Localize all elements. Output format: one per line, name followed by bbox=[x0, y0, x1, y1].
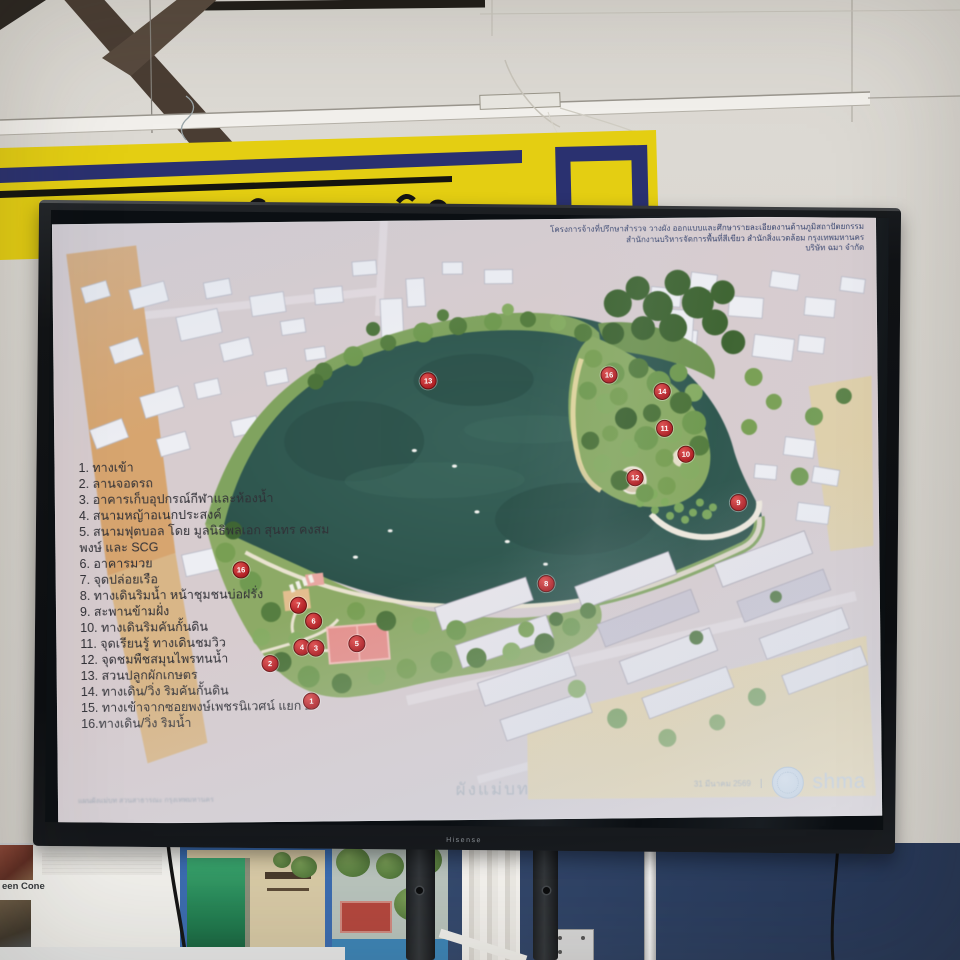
roof-corner-shadow bbox=[0, 0, 46, 30]
television: โครงการจ้างที่ปรึกษาสำรวจ วางผัง ออกแบบแ… bbox=[33, 200, 901, 854]
rail-bracket bbox=[480, 93, 560, 110]
tv-brand-label: Hisense bbox=[33, 833, 895, 848]
map-marker-16: 16 bbox=[600, 366, 617, 383]
map-marker-10: 10 bbox=[677, 446, 694, 463]
map-marker-1: 1 bbox=[303, 693, 320, 710]
map-marker-12: 12 bbox=[627, 469, 644, 486]
marker-layer: 13161411101298167643521 bbox=[52, 216, 882, 825]
map-marker-5: 5 bbox=[348, 635, 365, 652]
map-marker-8: 8 bbox=[538, 575, 555, 592]
cables bbox=[0, 843, 960, 960]
tv-screen: โครงการจ้างที่ปรึกษาสำรวจ วางผัง ออกแบบแ… bbox=[45, 210, 889, 830]
map-marker-16: 16 bbox=[232, 561, 249, 578]
map-marker-14: 14 bbox=[654, 383, 671, 400]
table-edge bbox=[0, 947, 345, 960]
map-marker-3: 3 bbox=[307, 640, 324, 657]
master-plan-slide: โครงการจ้างที่ปรึกษาสำรวจ วางผัง ออกแบบแ… bbox=[52, 216, 882, 825]
map-marker-6: 6 bbox=[305, 613, 322, 630]
map-marker-7: 7 bbox=[290, 597, 307, 614]
map-marker-13: 13 bbox=[420, 372, 437, 389]
map-marker-9: 9 bbox=[730, 494, 747, 511]
hanging-rail bbox=[0, 92, 870, 135]
map-marker-11: 11 bbox=[656, 420, 673, 437]
area-below-tv: een Cone bbox=[0, 843, 960, 960]
photo-of-presentation-screen: โครงการจ้างที่ปรึกษาสำรวจ วางผัง ออกแบบแ… bbox=[0, 0, 960, 960]
map-marker-2: 2 bbox=[261, 655, 278, 672]
